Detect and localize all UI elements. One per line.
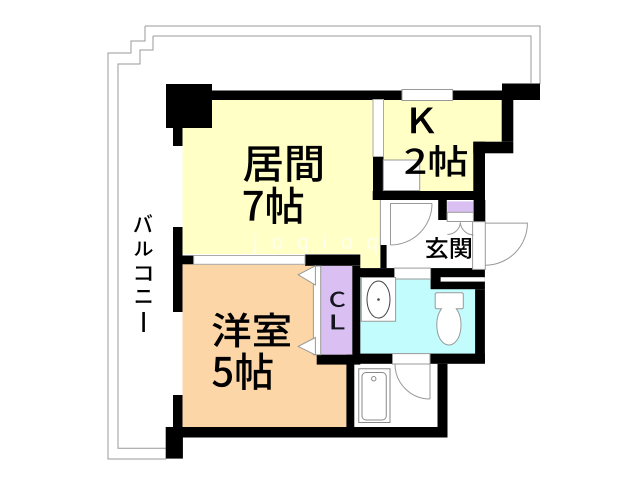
svg-text:j o q i o q: j o q i o q: [252, 231, 382, 254]
